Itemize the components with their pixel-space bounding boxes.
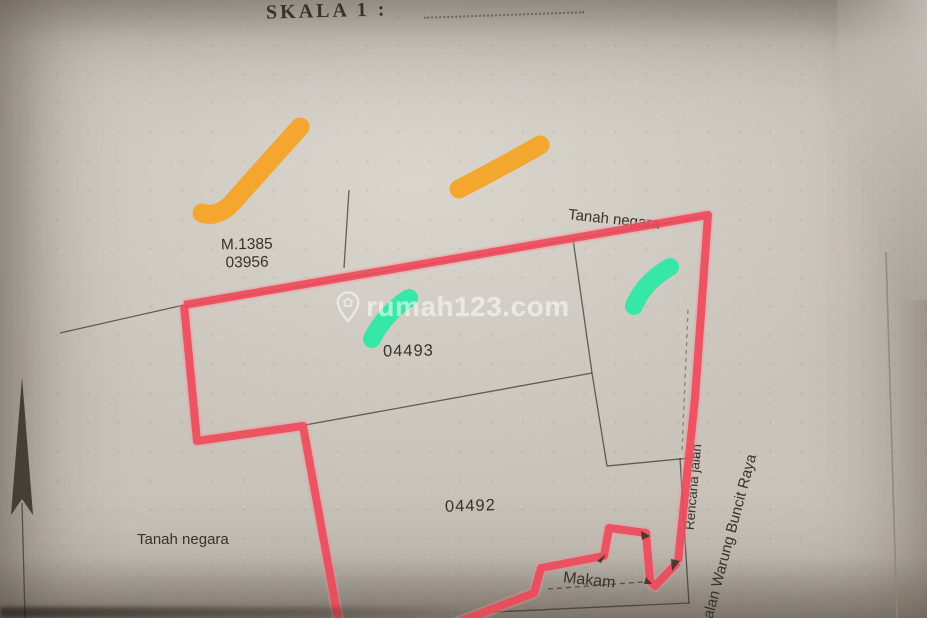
parcel-ref-line1: M.1385 [205,235,289,254]
rencana-jalan-label: Rencana jalan [682,443,704,530]
map-pin-house-icon [336,291,360,323]
survey-tick-line [344,190,349,268]
boundary-red-glow [184,305,339,618]
makam-label: Makam [562,569,616,592]
parcel-ref-label: M.1385 03956 [205,235,290,272]
tanah-negara-left-label: Tanah negara [137,531,229,548]
boundary-red-left [184,305,339,618]
north-arrow-icon [11,377,33,515]
scale-dotted-line [424,1,584,19]
north-arrow-shaft [22,503,25,618]
paper-highlight [837,0,927,300]
watermark-text: rumah123.com [366,291,570,323]
parcel-04493-label: 04493 [383,342,434,362]
boundary-ext-left-line [60,305,184,333]
tanah-negara-top-label: Tanah negara [567,206,660,232]
parcel-04492-label: 04492 [445,496,497,517]
paper-crease-line [886,252,897,618]
bottom-boundary-line [493,603,689,612]
corner-arrowhead [641,531,650,540]
corner-arrowhead [671,559,680,571]
orange-highlight-mark-center [459,145,540,189]
corridor-top-line [592,373,700,466]
paper-edge-shadow [0,607,480,618]
street-name-label: Jalan Warung Buncit Raya [698,452,760,618]
parcel-ref-line2: 03956 [205,253,289,272]
parcel-divider-line [305,373,592,425]
corner-arrowhead [644,577,652,584]
orange-highlight-mark-left [202,127,300,214]
teal-highlight-mark-right [634,267,670,306]
watermark: rumah123.com [336,291,570,323]
scale-title: SKALA 1 : [266,0,388,25]
road-dashed-line [682,310,688,452]
site-plan-scan: SKALA 1 : M.1385 03956 Tanah negara 0449… [0,0,927,618]
divider-vertical-line [573,239,592,373]
corner-arrowhead [597,554,606,563]
